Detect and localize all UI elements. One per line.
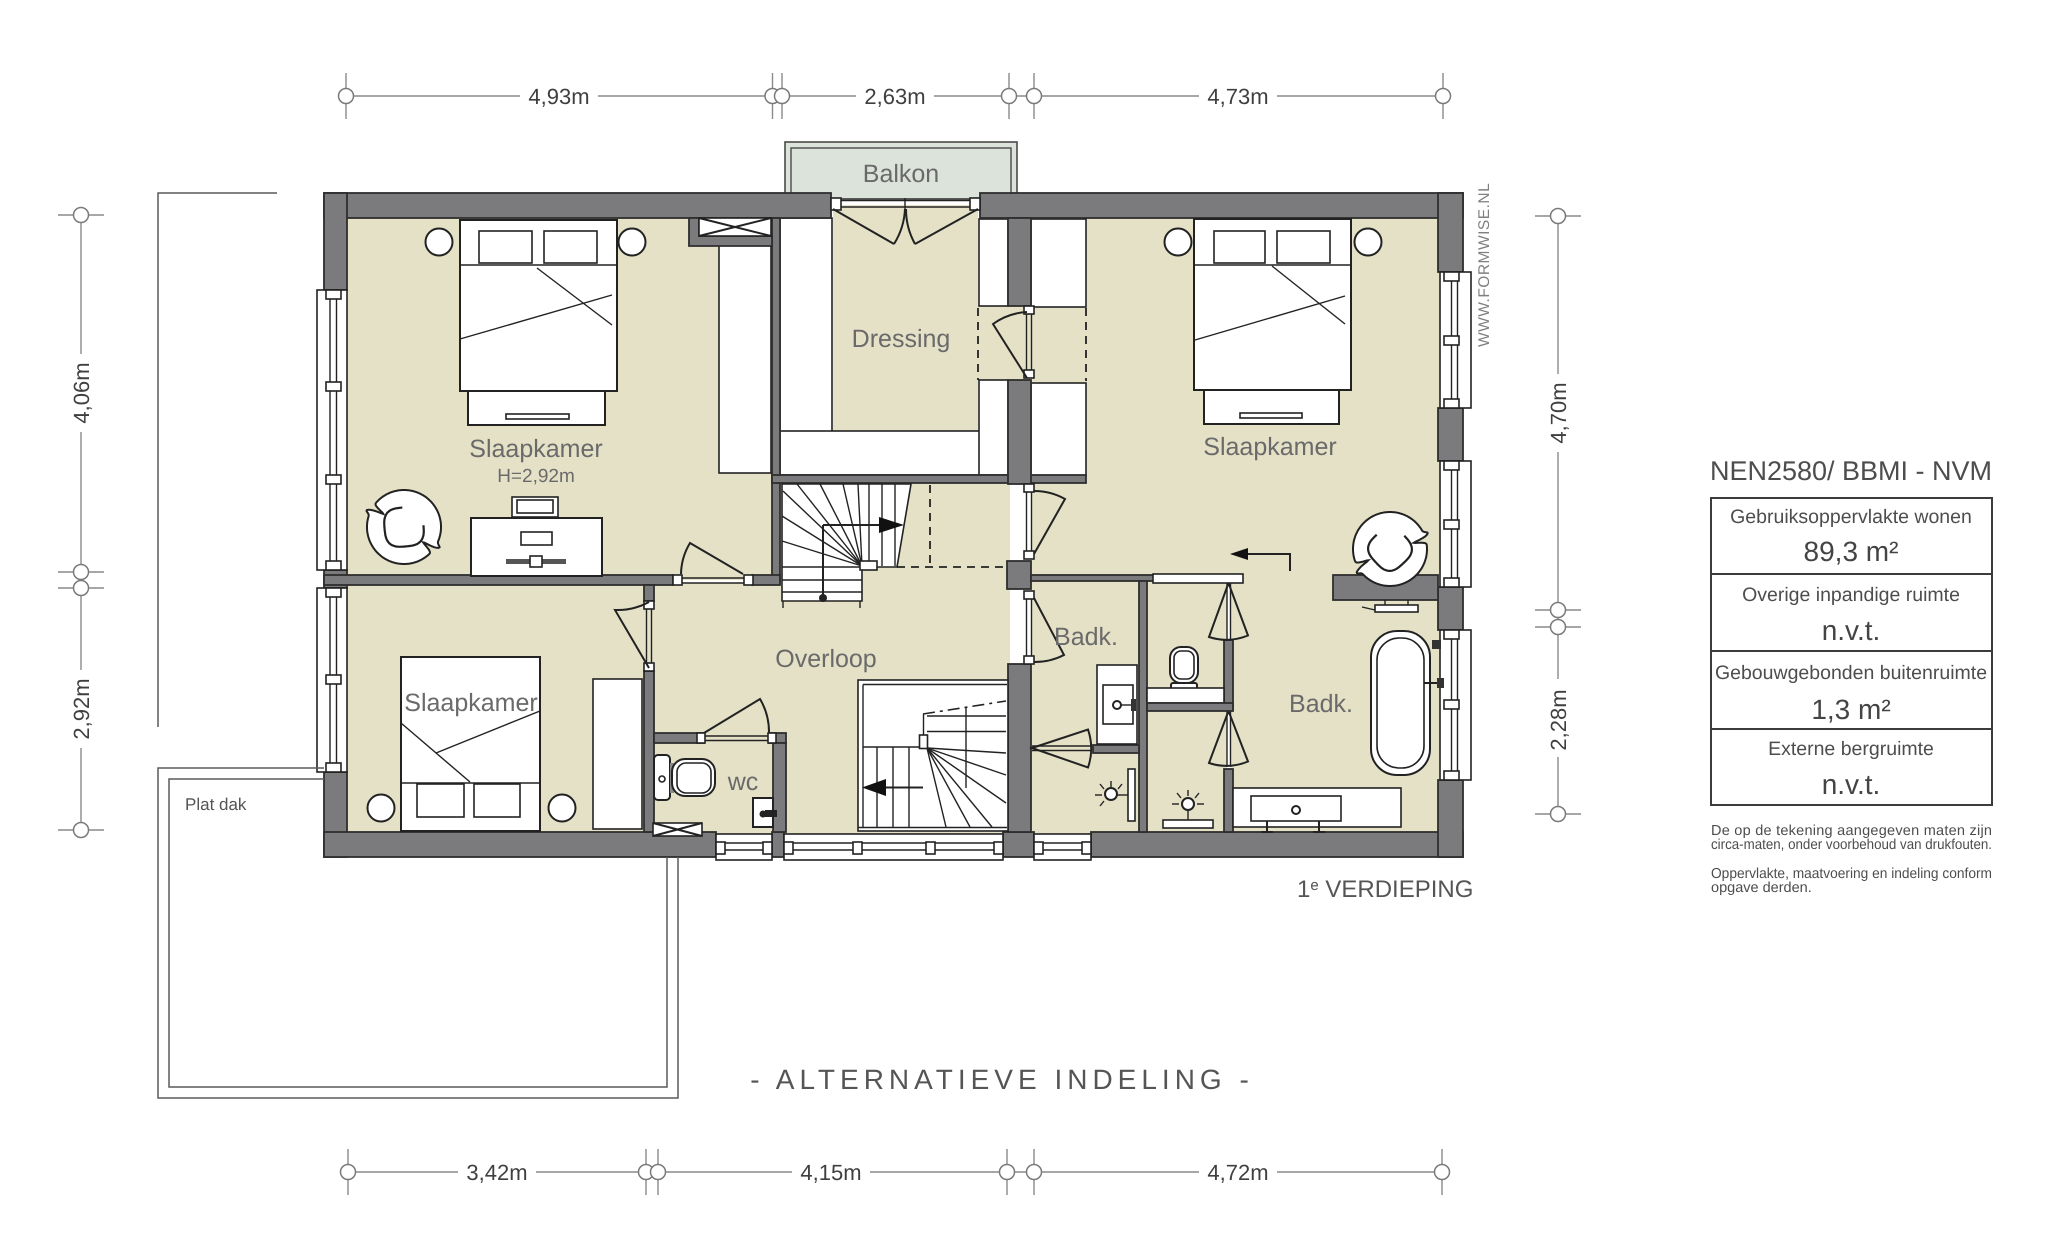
svg-text:H=2,92m: H=2,92m (497, 466, 575, 487)
svg-text:Slaapkamer: Slaapkamer (469, 435, 602, 463)
svg-text:Gebouwgebonden buitenruimte: Gebouwgebonden buitenruimte (1715, 662, 1987, 684)
svg-text:Overloop: Overloop (775, 645, 876, 673)
svg-text:opgave derden.: opgave derden. (1711, 880, 1812, 896)
svg-text:89,3 m²: 89,3 m² (1804, 536, 1899, 567)
svg-text:n.v.t.: n.v.t. (1822, 615, 1881, 646)
svg-text:Badk.: Badk. (1054, 623, 1118, 651)
svg-text:2,63m: 2,63m (864, 84, 925, 109)
svg-text:1,3 m²: 1,3 m² (1811, 694, 1890, 725)
svg-text:NEN2580/ BBMI - NVM: NEN2580/ BBMI - NVM (1710, 456, 1992, 486)
svg-text:4,15m: 4,15m (800, 1160, 861, 1185)
svg-text:WWW.FORMWISE.NL: WWW.FORMWISE.NL (1476, 183, 1493, 347)
svg-text:wc: wc (727, 768, 759, 796)
svg-text:2,28m: 2,28m (1546, 689, 1571, 750)
svg-text:4,06m: 4,06m (69, 362, 94, 423)
svg-text:Balkon: Balkon (863, 160, 939, 188)
svg-text:3,42m: 3,42m (466, 1160, 527, 1185)
svg-text:4,93m: 4,93m (528, 84, 589, 109)
svg-text:n.v.t.: n.v.t. (1822, 769, 1881, 800)
svg-text:Plat dak: Plat dak (185, 795, 247, 814)
svg-text:4,73m: 4,73m (1207, 84, 1268, 109)
svg-text:1e VERDIEPING: 1e VERDIEPING (1297, 876, 1473, 903)
svg-text:Slaapkamer: Slaapkamer (404, 689, 537, 717)
svg-text:Slaapkamer: Slaapkamer (1203, 433, 1336, 461)
svg-text:Gebruiksoppervlakte wonen: Gebruiksoppervlakte wonen (1730, 506, 1972, 528)
svg-text:4,70m: 4,70m (1546, 382, 1571, 443)
svg-text:- ALTERNATIEVE INDELING -: - ALTERNATIEVE INDELING - (750, 1064, 1254, 1095)
svg-text:4,72m: 4,72m (1207, 1160, 1268, 1185)
svg-text:Badk.: Badk. (1289, 690, 1353, 718)
svg-text:circa-maten, onder voorbehoud: circa-maten, onder voorbehoud van drukfo… (1711, 837, 1992, 853)
svg-text:Overige inpandige ruimte: Overige inpandige ruimte (1742, 584, 1960, 606)
svg-text:2,92m: 2,92m (69, 678, 94, 739)
svg-text:Externe bergruimte: Externe bergruimte (1768, 738, 1934, 760)
svg-text:Dressing: Dressing (852, 325, 951, 353)
